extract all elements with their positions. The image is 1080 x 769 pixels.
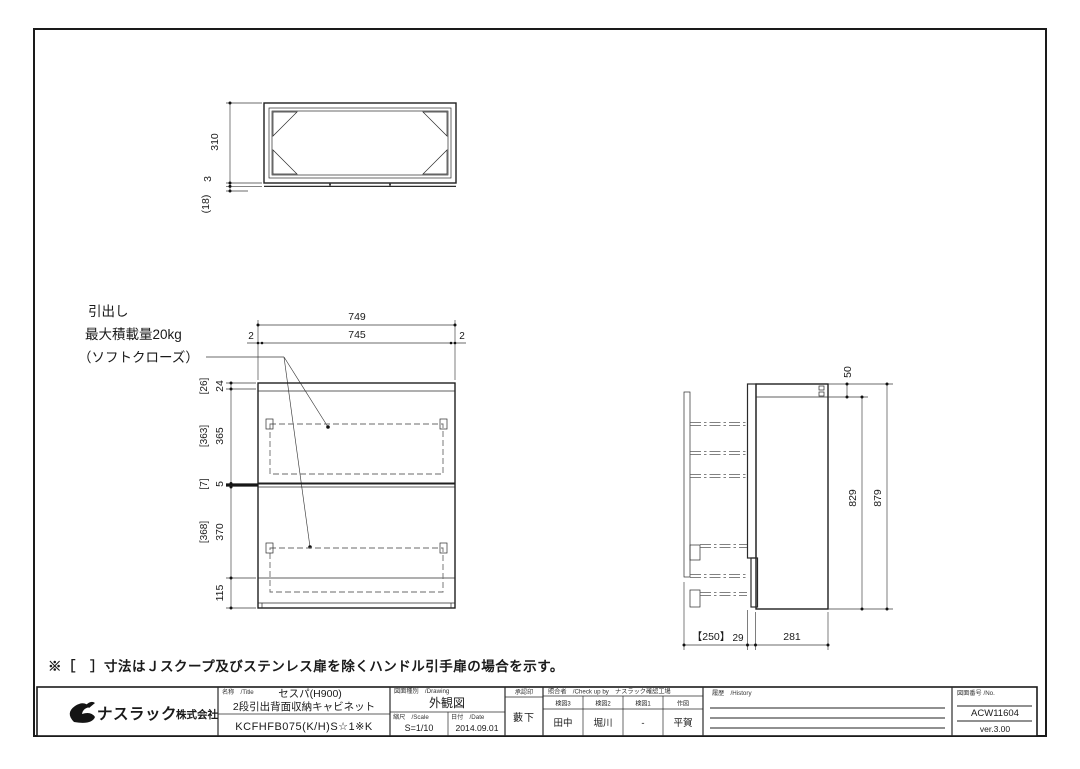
checker-role: 検図2 — [595, 700, 611, 708]
checkers-label: 照合者 /Check up by ナスラック確認工場 — [548, 688, 671, 696]
drawing-version: ver.3.00 — [980, 724, 1011, 734]
drawer-label-3: （ソフトクローズ） — [78, 350, 199, 365]
checker-name: 堀川 — [593, 718, 612, 729]
dim-overall-width: 749 — [348, 311, 366, 323]
checker-name: - — [641, 718, 644, 729]
drawing-sheet: 310 3 (18) 引出し 最大積載量20kg （ソフトクローズ） — [0, 0, 1080, 764]
title-block: ナスラック 株式会社 名称 /Title セスパ(H900) 2段引出背面収納キ… — [37, 687, 1037, 736]
fixing-mark — [329, 184, 331, 186]
approval-label: 承認印 — [515, 688, 534, 696]
dim-depth: 310 — [209, 133, 221, 151]
dim-bottom: 115 — [214, 584, 226, 601]
dim-back-panel: 3 — [202, 176, 214, 182]
title-label: 名称 /Title — [222, 688, 254, 696]
checker-name: 平賀 — [673, 717, 692, 729]
dim-gap: 5 — [214, 481, 226, 487]
dim-side-left: 2 — [248, 331, 254, 342]
dim-top-rail-alt: [26] — [199, 377, 210, 394]
dim-inner-width: 745 — [348, 329, 366, 341]
date-value: 2014.09.01 — [455, 723, 498, 733]
sheet-border — [34, 29, 1046, 736]
scale-value: S=1/10 — [405, 723, 434, 733]
dim-gap: (18) — [200, 195, 212, 214]
dim-drawer2: 370 — [214, 523, 226, 541]
checker-name: 田中 — [553, 717, 572, 729]
dim-inner-height: 829 — [847, 489, 859, 507]
cad-canvas: 310 3 (18) 引出し 最大積載量20kg （ソフトクローズ） — [0, 0, 1080, 764]
dim-drawer1-alt: [363] — [199, 425, 210, 447]
history-label: 履歴 /History — [712, 690, 752, 697]
drawing-type-label: 図面種別 /Drawing — [394, 687, 450, 695]
company-name: ナスラック — [97, 705, 177, 723]
dim-drawer1: 365 — [214, 427, 226, 445]
approval-name: 藪下 — [513, 711, 535, 724]
checker-role: 作図 — [677, 700, 689, 708]
product-name: 2段引出背面収納キャビネット — [233, 700, 375, 713]
dim-cabinet-depth: 281 — [783, 631, 801, 643]
dim-pullout: 【250】 — [692, 631, 731, 643]
footnote: ※［ ］寸法はＪスクープ及びステンレス扉を除くハンドル引手扉の場合を示す。 — [48, 658, 564, 674]
dim-gap-alt: [7] — [199, 478, 210, 489]
scale-label: 縮尺 /Scale — [393, 713, 429, 721]
product-code: KCFHFB075(K/H)S☆1※K — [235, 721, 373, 733]
number-label: 図面番号 /No. — [957, 690, 995, 697]
dim-door: 29 — [732, 633, 744, 644]
fixing-mark — [389, 184, 391, 186]
dim-side-right: 2 — [459, 331, 465, 342]
dim-drawer2-alt: [368] — [199, 521, 210, 543]
checker-role: 検図1 — [635, 700, 651, 708]
product-series: セスパ(H900) — [278, 688, 342, 700]
dim-top-rail: 24 — [214, 380, 226, 392]
date-label: 日付 /Date — [451, 713, 485, 721]
drawing-number: ACW11604 — [971, 708, 1019, 719]
company-suffix: 株式会社 — [176, 708, 218, 721]
dim-overall-height: 879 — [872, 489, 884, 507]
drawer-label-2: 最大積載量20kg — [85, 327, 182, 342]
drawing-type: 外観図 — [429, 696, 465, 710]
drawer-label-1: 引出し — [88, 304, 129, 319]
checker-role: 検図3 — [555, 700, 571, 708]
dim-top-box: 50 — [842, 366, 854, 378]
